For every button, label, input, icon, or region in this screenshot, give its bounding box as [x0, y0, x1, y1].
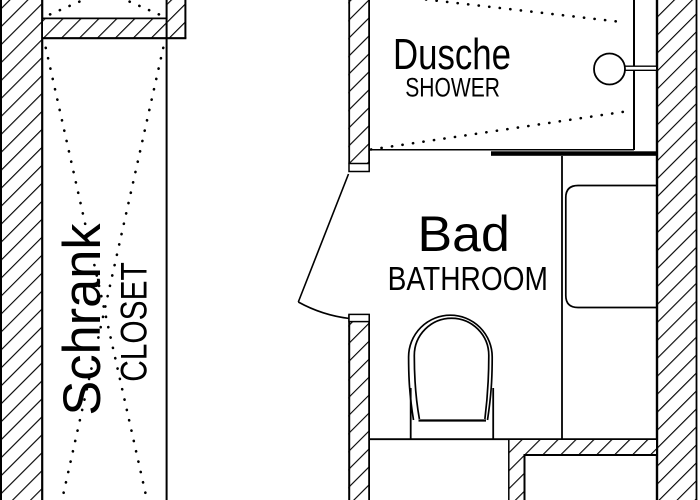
svg-text:Bad: Bad — [418, 206, 510, 262]
svg-text:BATHROOM: BATHROOM — [388, 260, 548, 298]
svg-text:Schrank: Schrank — [54, 223, 112, 416]
svg-text:Dusche: Dusche — [393, 30, 511, 79]
svg-text:SHOWER: SHOWER — [405, 73, 500, 103]
svg-text:CLOSET: CLOSET — [114, 262, 155, 382]
